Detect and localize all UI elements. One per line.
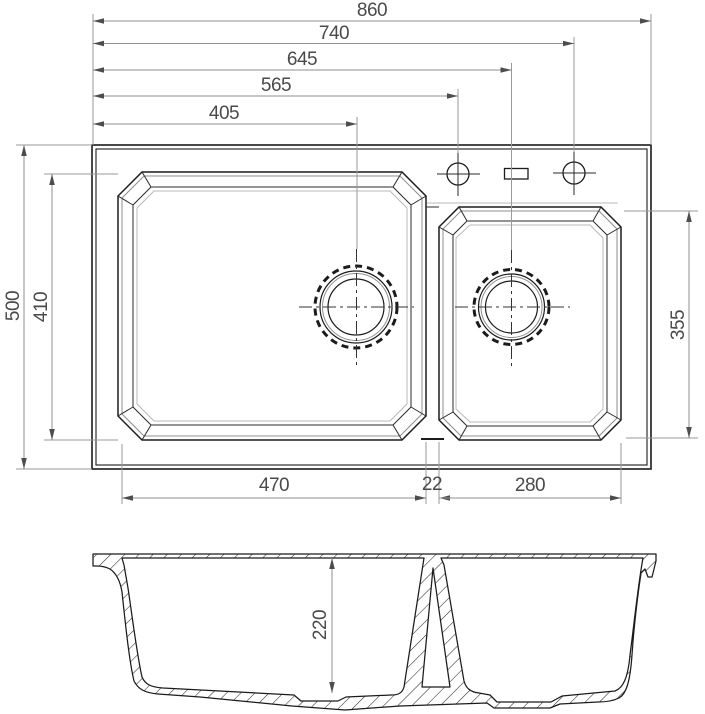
dim-small-bowl-width-label: 280 [515,475,545,496]
dim-bowl-inner-height-label: 220 [310,610,331,640]
small-bowl [421,203,621,440]
section-shell [93,554,656,710]
section-view: 220 [93,554,656,710]
dim-right-faucet-hole-offset-label: 740 [319,23,349,44]
main-bowl-corner-bevels [118,172,426,440]
right-faucet-hole [553,152,596,195]
main-bowl-drain [299,249,414,366]
dim-right-faucet-hole-offset: 740 [93,23,574,46]
dim-small-bowl-drain-offset-label: 645 [287,49,317,70]
dim-main-bowl-depth-label: 410 [31,292,52,322]
dim-left-faucet-hole-offset-label: 565 [261,75,291,96]
sink-technical-drawing: 860 740 645 565 405 500 [0,0,705,714]
dim-overall-width: 860 [93,0,651,24]
dim-divider-width: 22 [422,474,460,501]
dimensions: 860 740 645 565 405 500 [3,0,698,504]
left-faucet-hole [437,153,480,196]
dim-overall-depth: 500 [3,145,27,469]
dim-overall-width-label: 860 [357,0,387,21]
dim-small-bowl-width: 280 [439,475,621,501]
dim-small-bowl-depth: 355 [668,211,692,438]
small-bowl-drain [455,250,570,366]
dim-main-bowl-width-label: 470 [259,475,289,496]
dim-main-bowl-depth: 410 [31,174,55,440]
dim-main-bowl-drain-offset-label: 405 [209,103,239,124]
top-view [92,145,651,469]
dim-main-bowl-width: 470 [122,475,426,501]
dim-small-bowl-depth-label: 355 [668,310,689,340]
small-bowl-corner-bevels [439,207,621,440]
dim-divider-width-label: 22 [422,474,442,495]
dim-overall-depth-label: 500 [3,291,24,321]
dim-small-bowl-drain-offset: 645 [93,49,512,73]
accessory-hole [505,169,529,180]
main-bowl [118,172,426,440]
faucet-deck [437,152,596,196]
dim-bowl-inner-height: 220 [310,558,335,693]
dim-main-bowl-drain-offset: 405 [93,103,357,127]
dim-left-faucet-hole-offset: 565 [93,75,458,99]
